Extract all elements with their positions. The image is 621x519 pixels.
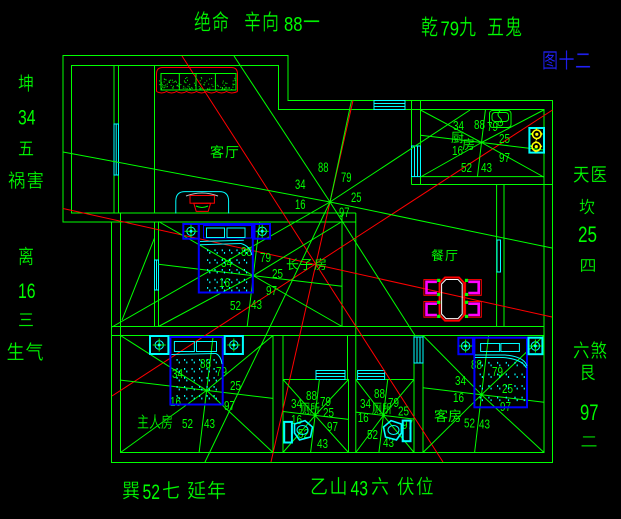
svg-text:79: 79 [260, 250, 271, 265]
svg-text:43: 43 [204, 416, 215, 431]
svg-text:88: 88 [374, 386, 385, 401]
svg-text:34: 34 [453, 118, 464, 133]
svg-text:52: 52 [143, 481, 161, 504]
svg-text:34: 34 [221, 255, 232, 270]
svg-text:25: 25 [323, 405, 334, 420]
svg-text:88: 88 [318, 160, 329, 175]
svg-text:34: 34 [455, 373, 466, 388]
svg-text:79: 79 [216, 364, 227, 379]
svg-text:34: 34 [295, 177, 306, 192]
svg-text:88: 88 [284, 14, 303, 36]
svg-text:34: 34 [18, 107, 36, 130]
svg-text:79: 79 [492, 364, 503, 379]
svg-text:79: 79 [341, 170, 352, 185]
svg-text:52: 52 [461, 160, 472, 175]
svg-text:43: 43 [251, 297, 262, 312]
svg-text:16: 16 [170, 394, 181, 409]
svg-text:43: 43 [317, 436, 328, 451]
svg-text:43: 43 [481, 160, 492, 175]
svg-text:25: 25 [272, 266, 283, 281]
svg-text:97: 97 [580, 400, 599, 425]
svg-text:97: 97 [327, 419, 338, 434]
svg-text:16: 16 [18, 280, 36, 303]
svg-text:88: 88 [200, 356, 211, 371]
svg-text:25: 25 [502, 381, 513, 396]
svg-text:25: 25 [351, 190, 362, 205]
svg-text:43: 43 [479, 417, 490, 432]
svg-text:88: 88 [474, 117, 485, 132]
svg-text:43: 43 [351, 478, 369, 501]
svg-text:97: 97 [266, 283, 277, 298]
svg-text:25: 25 [499, 131, 510, 146]
svg-text:52: 52 [367, 427, 378, 442]
svg-text:34: 34 [360, 396, 371, 411]
svg-text:97: 97 [499, 150, 510, 165]
svg-text:79: 79 [441, 19, 460, 41]
svg-text:16: 16 [453, 390, 464, 405]
svg-text:25: 25 [230, 378, 241, 393]
svg-text:34: 34 [291, 396, 302, 411]
svg-text:16: 16 [358, 410, 369, 425]
svg-text:52: 52 [230, 298, 241, 313]
svg-text:16: 16 [295, 197, 306, 212]
svg-text:97: 97 [224, 398, 235, 413]
svg-text:25: 25 [578, 222, 597, 247]
svg-text:52: 52 [464, 416, 475, 431]
svg-text:97: 97 [339, 205, 350, 220]
svg-text:88: 88 [471, 357, 482, 372]
svg-text:16: 16 [452, 143, 463, 158]
svg-text:52: 52 [182, 416, 193, 431]
svg-text:88: 88 [306, 388, 317, 403]
